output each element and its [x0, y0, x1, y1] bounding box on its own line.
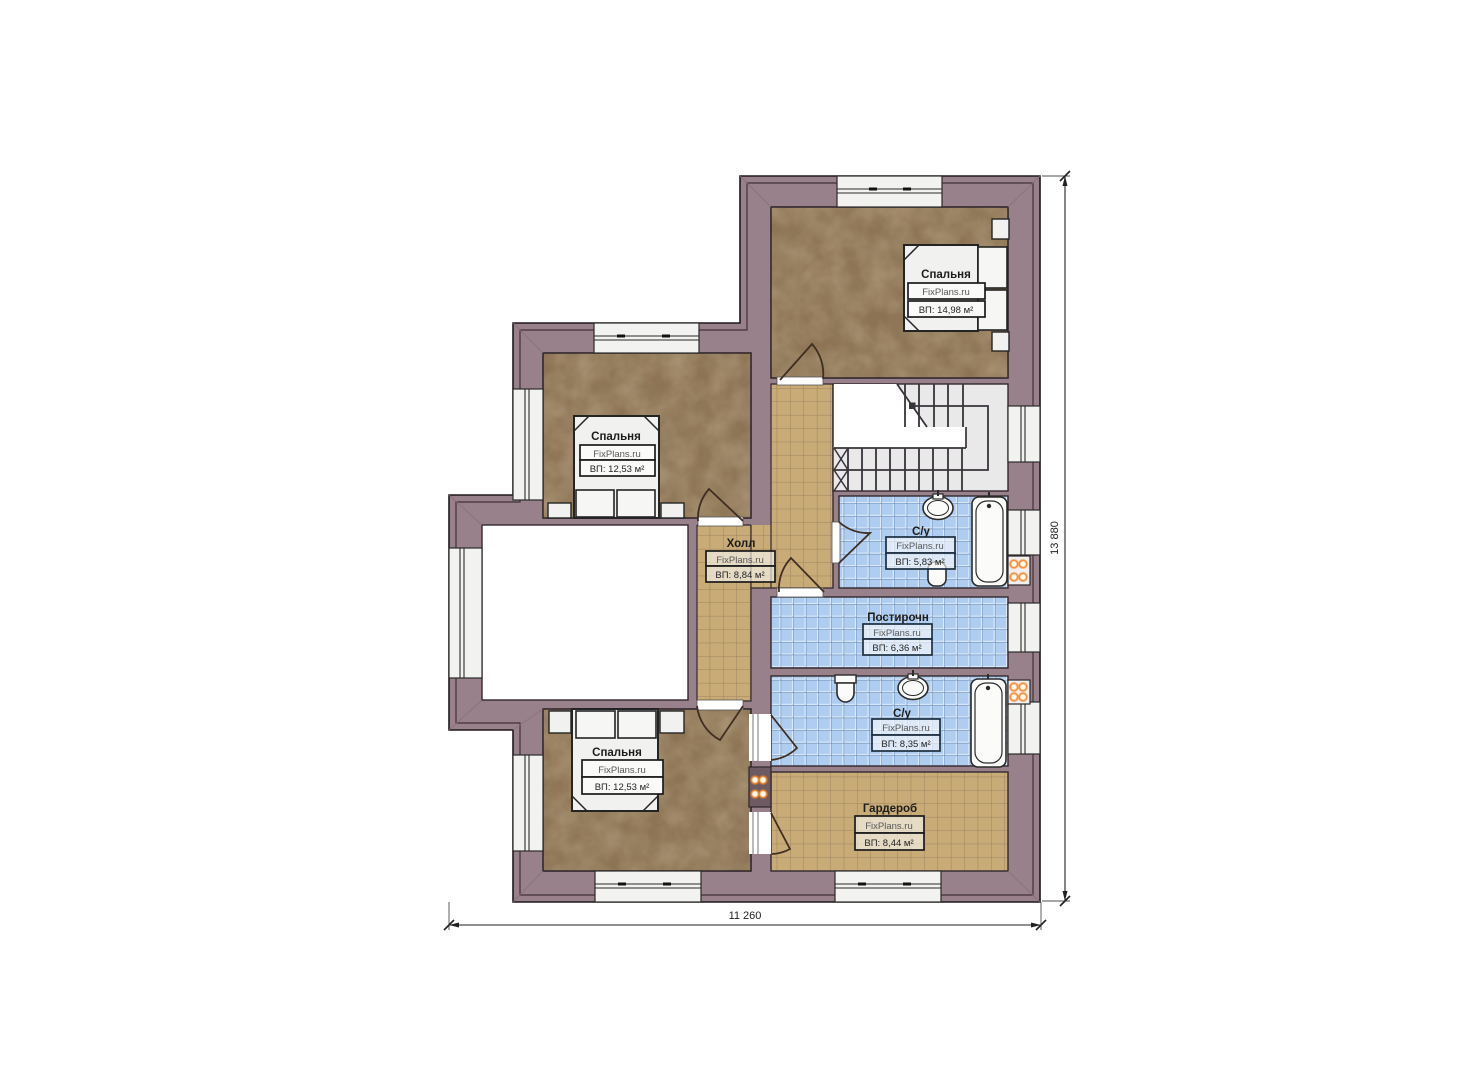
svg-text:Спальня: Спальня [591, 431, 641, 443]
svg-text:FixPlans.ru: FixPlans.ru [598, 765, 646, 776]
svg-text:FixPlans.ru: FixPlans.ru [922, 287, 970, 298]
svg-text:FixPlans.ru: FixPlans.ru [873, 628, 921, 639]
svg-text:ВП: 8,44 м²: ВП: 8,44 м² [864, 838, 913, 849]
svg-text:Холл: Холл [727, 538, 756, 550]
svg-text:ВП: 6,36 м²: ВП: 6,36 м² [872, 643, 921, 654]
svg-text:11 260: 11 260 [729, 910, 762, 922]
svg-text:Спальня: Спальня [592, 747, 642, 759]
svg-text:Спальня: Спальня [921, 269, 971, 281]
svg-text:FixPlans.ru: FixPlans.ru [593, 449, 641, 460]
svg-text:Гардероб: Гардероб [863, 803, 917, 815]
svg-text:Постирочн: Постирочн [867, 612, 929, 624]
svg-text:FixPlans.ru: FixPlans.ru [865, 821, 913, 832]
svg-text:FixPlans.ru: FixPlans.ru [896, 541, 944, 552]
svg-text:ВП: 12,53 м²: ВП: 12,53 м² [590, 464, 645, 475]
svg-text:FixPlans.ru: FixPlans.ru [882, 723, 930, 734]
svg-text:ВП: 12,53 м²: ВП: 12,53 м² [595, 782, 650, 793]
svg-text:ВП: 14,98 м²: ВП: 14,98 м² [919, 305, 974, 316]
svg-text:13 880: 13 880 [1049, 521, 1061, 555]
svg-text:ВП: 8,84 м²: ВП: 8,84 м² [715, 570, 764, 581]
svg-text:FixPlans.ru: FixPlans.ru [716, 555, 764, 566]
svg-text:ВП: 5,83 м²: ВП: 5,83 м² [895, 557, 944, 568]
svg-text:ВП: 8,35 м²: ВП: 8,35 м² [881, 739, 930, 750]
